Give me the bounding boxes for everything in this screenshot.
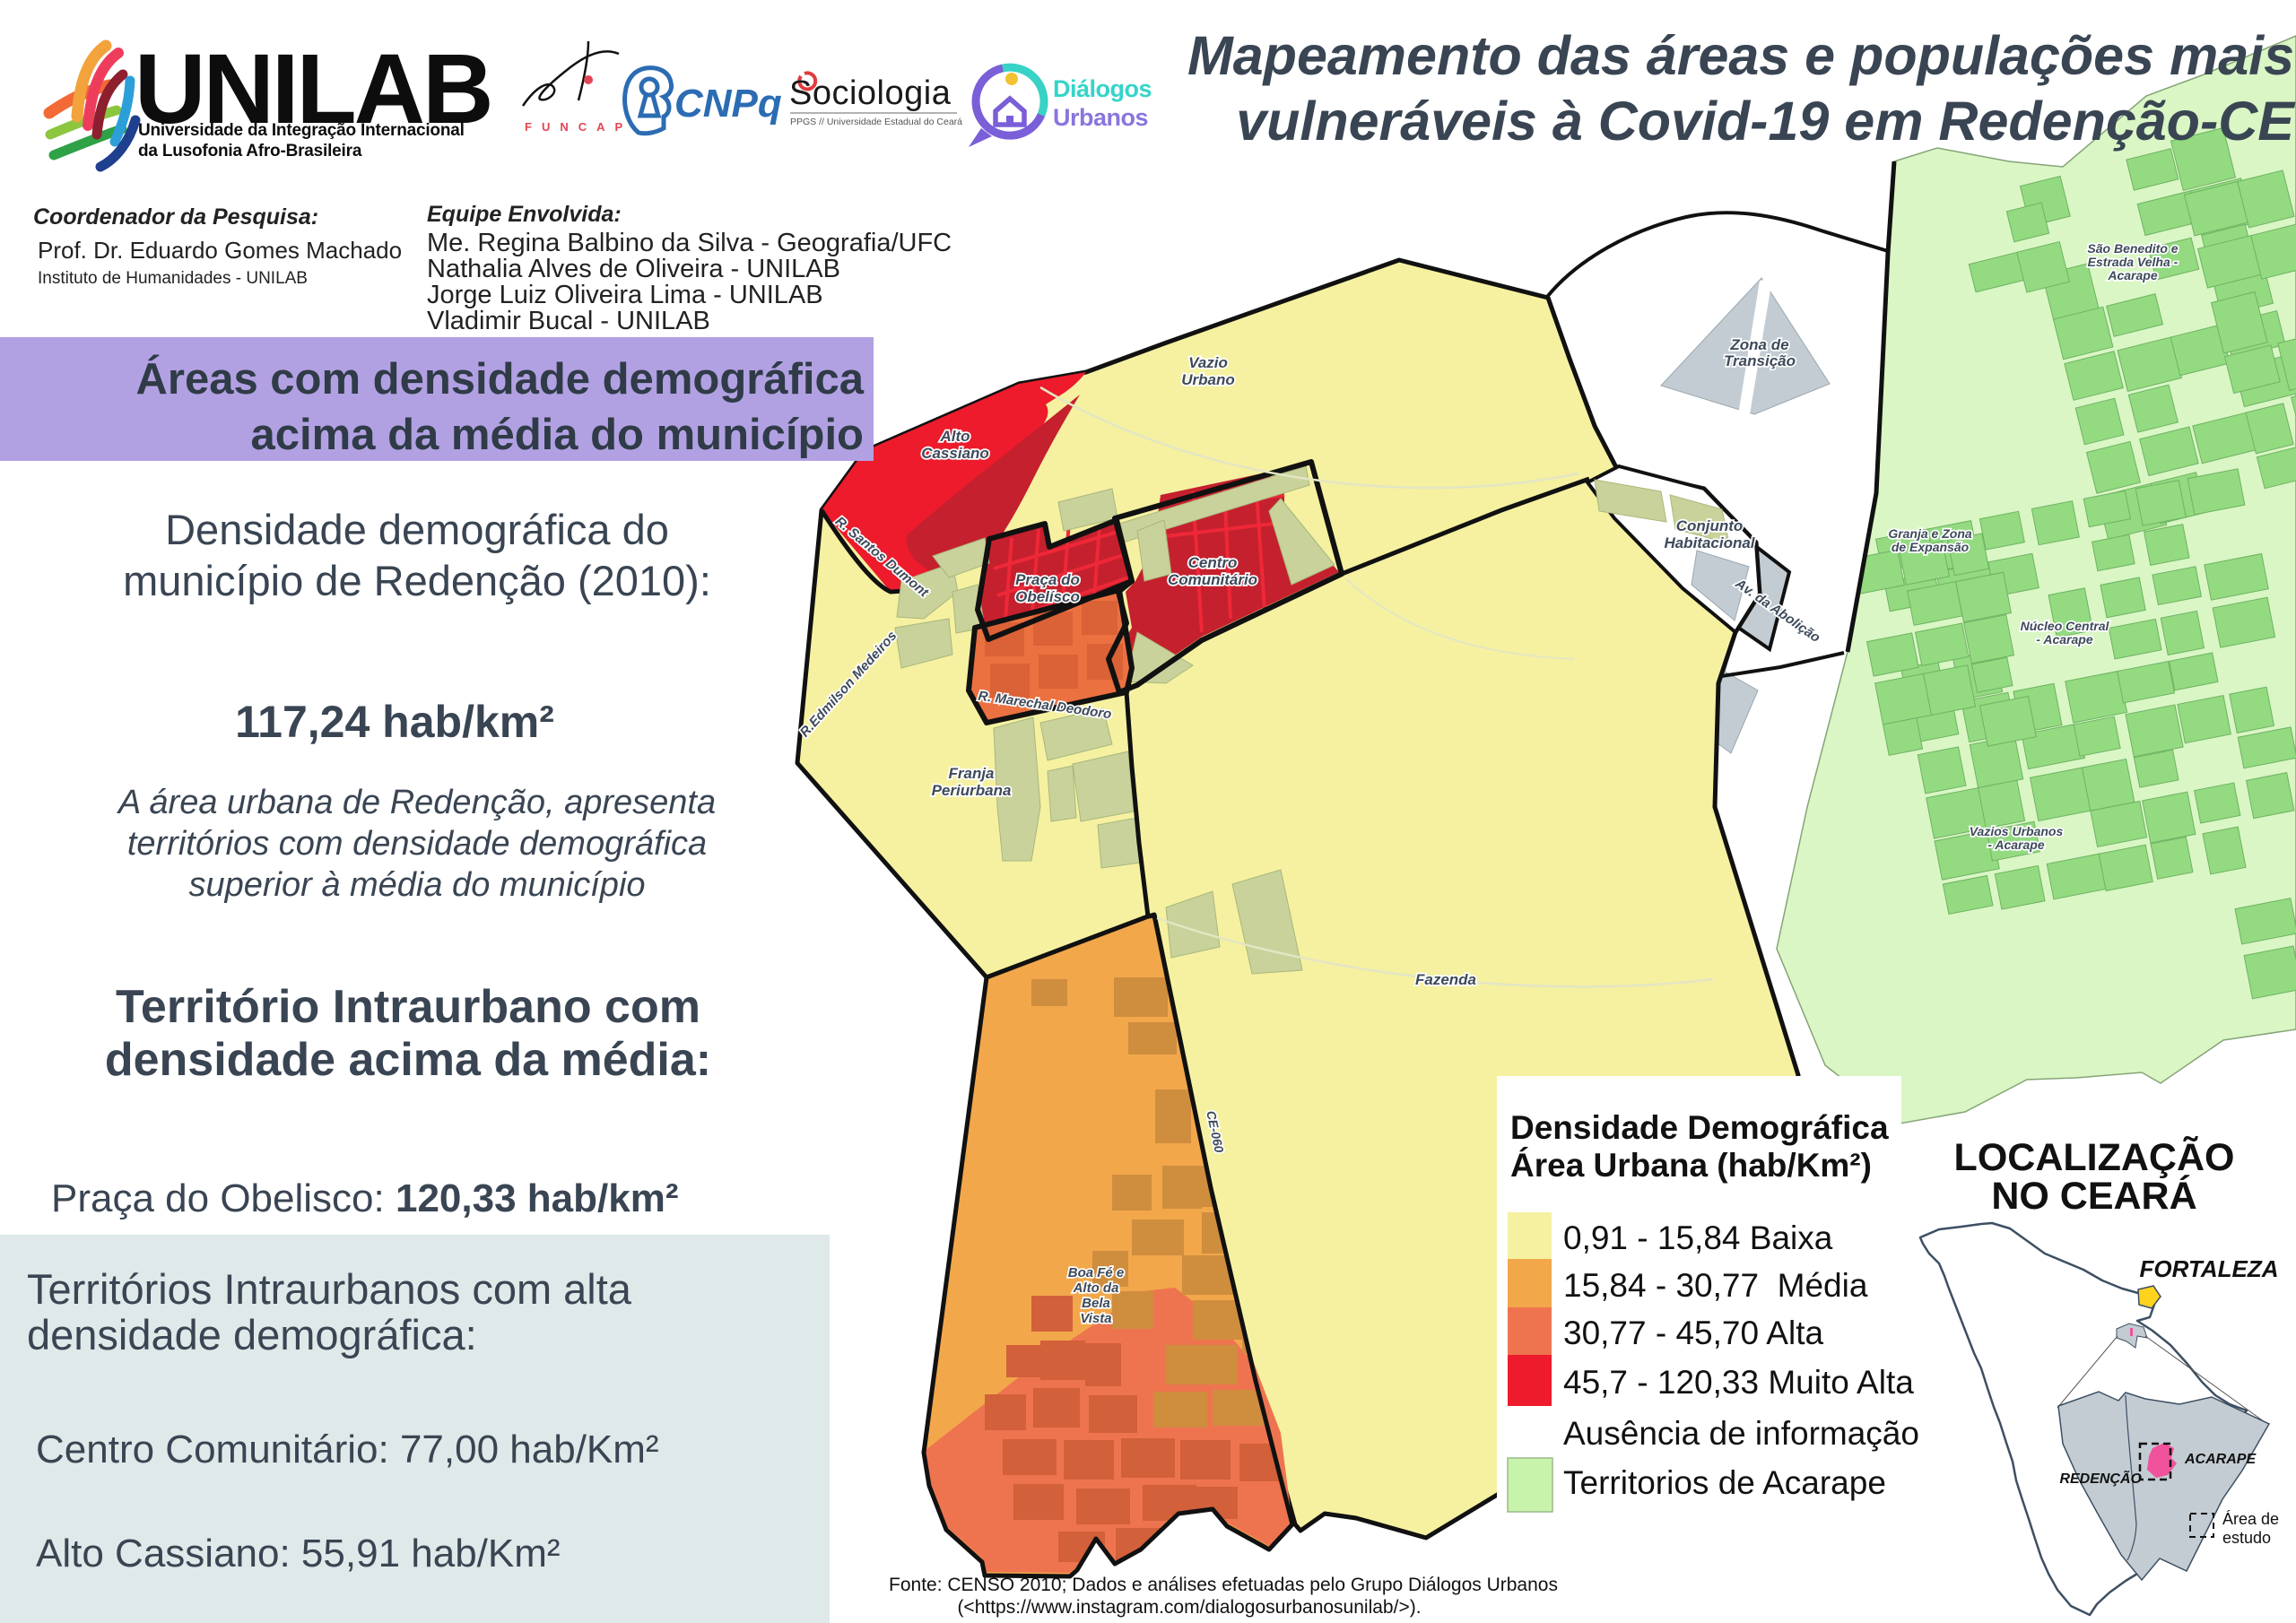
svg-text:Sociologia: Sociologia: [789, 74, 952, 112]
svg-text:Granja e Zona: Granja e Zona: [1888, 526, 1972, 541]
svg-text:0,91 - 15,84 Baixa: 0,91 - 15,84 Baixa: [1563, 1219, 1833, 1256]
svg-text:NO CEARÁ: NO CEARÁ: [1991, 1175, 2196, 1218]
svg-text:- Acarape: - Acarape: [2036, 632, 2093, 647]
svg-text:Conjunto: Conjunto: [1676, 517, 1744, 534]
svg-text:Diálogos: Diálogos: [1053, 75, 1152, 102]
svg-text:Fonte: CENSO 2010; Dados e aná: Fonte: CENSO 2010; Dados e análises efet…: [889, 1575, 1558, 1595]
svg-text:REDENÇÃO: REDENÇÃO: [2059, 1469, 2142, 1487]
svg-text:Estrada Velha -: Estrada Velha -: [2088, 255, 2179, 269]
svg-text:Boa Fé e: Boa Fé e: [1068, 1265, 1125, 1280]
svg-text:Zona de: Zona de: [1729, 336, 1788, 353]
svg-text:Franja: Franja: [948, 765, 994, 782]
svg-text:(<https://www.instagram.com/di: (<https://www.instagram.com/dialogosurba…: [957, 1597, 1421, 1618]
svg-text:Fazenda: Fazenda: [1415, 971, 1476, 988]
svg-text:Habitacional: Habitacional: [1664, 534, 1755, 551]
svg-text:Cassiano: Cassiano: [921, 445, 989, 462]
svg-text:Ausência de informação: Ausência de informação: [1563, 1415, 1919, 1452]
svg-text:Acarape: Acarape: [2107, 268, 2157, 282]
svg-text:15,84 - 30,77 Média: 15,84 - 30,77 Média: [1563, 1267, 1868, 1304]
svg-text:CNPq: CNPq: [674, 82, 782, 126]
svg-text:FORTALEZA: FORTALEZA: [2139, 1255, 2278, 1282]
svg-text:PPGS // Universidade Estadual: PPGS // Universidade Estadual do Ceará: [790, 117, 962, 127]
svg-text:LOCALIZAÇÃO: LOCALIZAÇÃO: [1954, 1136, 2235, 1179]
svg-text:Territorios de Acarape: Territorios de Acarape: [1563, 1464, 1886, 1501]
svg-text:Vazios Urbanos: Vazios Urbanos: [1970, 824, 2064, 838]
svg-text:Praça do: Praça do: [1015, 571, 1080, 588]
svg-text:Vazio: Vazio: [1188, 354, 1228, 371]
svg-text:ACARAPE: ACARAPE: [2184, 1452, 2257, 1467]
svg-text:Transição: Transição: [1724, 352, 1796, 369]
svg-text:45,7 - 120,33 Muito Alta: 45,7 - 120,33 Muito Alta: [1563, 1364, 1914, 1401]
svg-text:Área Urbana (hab/Km²): Área Urbana (hab/Km²): [1510, 1147, 1872, 1184]
svg-text:Núcleo Central: Núcleo Central: [2021, 619, 2110, 633]
svg-text:Urbano: Urbano: [1181, 371, 1235, 388]
svg-text:Obelísco: Obelísco: [1015, 588, 1080, 605]
svg-text:de Expansão: de Expansão: [1892, 540, 1970, 554]
svg-text:São Benedito e: São Benedito e: [2087, 241, 2178, 256]
svg-text:Alto da: Alto da: [1073, 1280, 1119, 1296]
svg-text:30,77 - 45,70 Alta: 30,77 - 45,70 Alta: [1563, 1315, 1823, 1351]
svg-text:Urbanos: Urbanos: [1053, 104, 1148, 131]
svg-text:Comunitário: Comunitário: [1168, 571, 1257, 588]
svg-text:Área de: Área de: [2222, 1510, 2279, 1528]
svg-text:Densidade Demográfica: Densidade Demográfica: [1510, 1109, 1889, 1146]
svg-text:Vista: Vista: [1080, 1311, 1111, 1326]
svg-text:Centro: Centro: [1188, 554, 1238, 571]
svg-text:Periurbana: Periurbana: [932, 782, 1012, 799]
svg-text:Alto: Alto: [939, 428, 970, 445]
svg-text:estudo: estudo: [2222, 1529, 2271, 1547]
svg-text:- Acarape: - Acarape: [1987, 838, 2045, 852]
svg-text:FUNCAP: FUNCAP: [525, 120, 632, 134]
svg-text:Bela: Bela: [1082, 1296, 1110, 1311]
